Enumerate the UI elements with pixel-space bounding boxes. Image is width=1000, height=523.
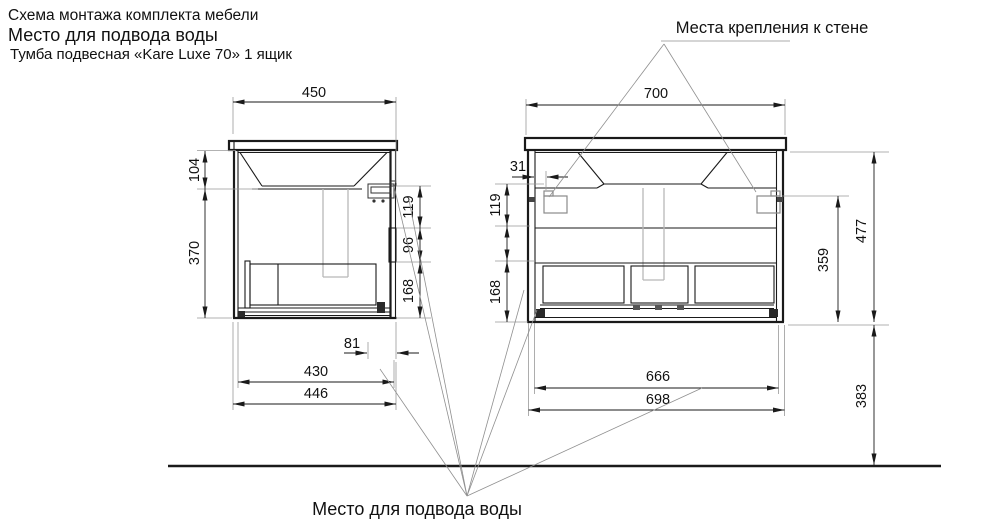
mounting-scheme-page: Схема монтажа комплекта мебели Место для… xyxy=(0,0,1000,523)
dim-front-666: 666 xyxy=(646,369,670,385)
side-view-dimensions: 450 104 370 119 96 168 81 430 446 xyxy=(187,85,431,410)
water-supply-label: Место для подвода воды xyxy=(312,499,522,519)
front-right-bracket xyxy=(757,191,783,213)
dim-front-383: 383 xyxy=(854,384,870,408)
technical-drawing: Схема монтажа комплекта мебели Место для… xyxy=(0,0,1000,523)
dim-side-119: 119 xyxy=(401,195,417,218)
side-sink-basin xyxy=(240,153,387,190)
dim-front-31: 31 xyxy=(510,159,526,175)
front-sink-basin xyxy=(535,153,776,189)
dim-side-430: 430 xyxy=(304,364,328,380)
front-view xyxy=(525,138,786,322)
side-drawer xyxy=(245,261,376,308)
front-bottom-rails xyxy=(535,305,778,318)
dim-front-119: 119 xyxy=(488,193,504,216)
title-block: Схема монтажа комплекта мебели Место для… xyxy=(8,7,292,63)
dim-side-104: 104 xyxy=(187,158,203,182)
dim-side-370: 370 xyxy=(187,241,203,265)
title-line-2: Место для подвода воды xyxy=(8,25,218,45)
title-line-3: Тумба подвесная «Kare Luxe 70» 1 ящик xyxy=(10,46,292,63)
dim-front-359: 359 xyxy=(816,248,832,272)
side-bottom-rails xyxy=(238,302,390,317)
dim-front-698: 698 xyxy=(646,392,670,408)
title-line-1: Схема монтажа комплекта мебели xyxy=(8,7,258,24)
side-countertop xyxy=(229,141,397,150)
dim-side-81: 81 xyxy=(344,336,360,352)
front-drawer xyxy=(535,263,776,303)
wall-mount-label: Места крепления к стене xyxy=(676,19,869,37)
dim-side-446: 446 xyxy=(304,386,328,402)
dim-front-477: 477 xyxy=(854,219,870,243)
dim-side-168: 168 xyxy=(401,279,417,303)
dim-front-168: 168 xyxy=(488,280,504,304)
wall-mount-annotation: Места крепления к стене xyxy=(549,19,868,197)
front-countertop xyxy=(525,138,786,150)
dim-side-450: 450 xyxy=(302,85,326,101)
side-view xyxy=(229,141,397,318)
side-mount-bracket xyxy=(368,181,396,203)
dim-front-700: 700 xyxy=(644,86,668,102)
